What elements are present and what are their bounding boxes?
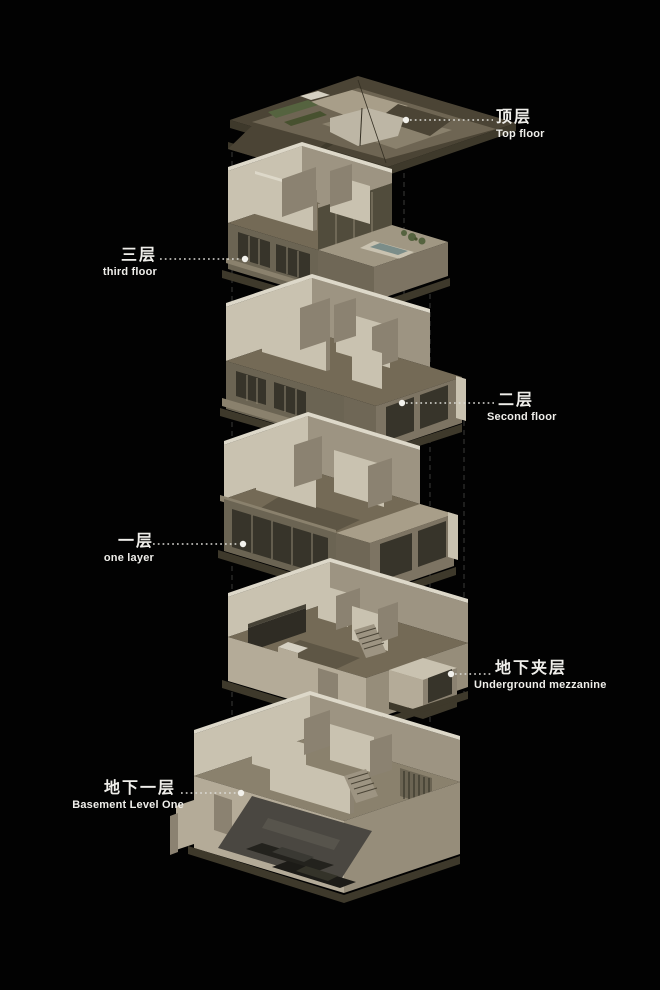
label-basement-level-one-zh: 地下一层	[72, 779, 184, 798]
label-underground-mezzanine-en: Underground mezzanine	[474, 678, 607, 692]
label-underground-mezzanine: 地下夹层 Underground mezzanine	[474, 659, 607, 692]
label-top-floor-zh: 顶层	[496, 108, 545, 127]
exploded-axonometric-diagram	[0, 0, 660, 990]
label-basement-level-one-en: Basement Level One	[72, 798, 184, 812]
label-top-floor-en: Top floor	[496, 127, 545, 141]
label-third-floor-en: third floor	[103, 265, 157, 279]
label-underground-mezzanine-zh: 地下夹层	[474, 659, 607, 678]
label-first-floor-en: one layer	[104, 551, 154, 565]
label-first-floor-zh: 一层	[104, 532, 154, 551]
label-first-floor: 一层 one layer	[104, 532, 154, 565]
label-second-floor: 二层 Second floor	[487, 391, 557, 424]
label-basement-level-one: 地下一层 Basement Level One	[72, 779, 184, 812]
label-third-floor: 三层 third floor	[103, 246, 157, 279]
label-second-floor-zh: 二层	[487, 391, 557, 410]
label-top-floor: 顶层 Top floor	[496, 108, 545, 141]
exploded-axonometric-page: 顶层 Top floor 三层 third floor 二层 Second fl…	[0, 0, 660, 990]
label-third-floor-zh: 三层	[103, 246, 157, 265]
label-second-floor-en: Second floor	[487, 410, 557, 424]
basement-level-one-illustration	[170, 691, 460, 903]
